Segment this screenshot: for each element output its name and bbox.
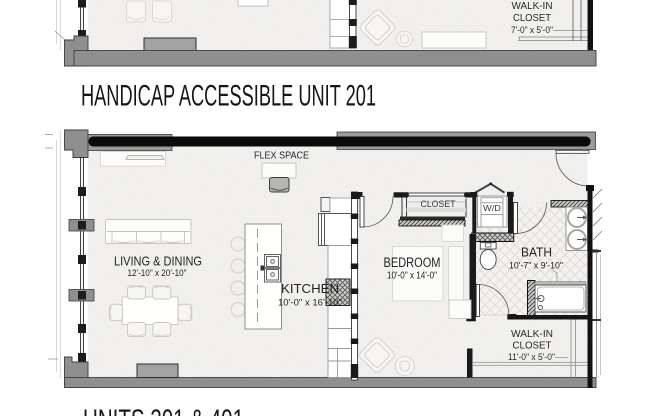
svg-text:CLOSET: CLOSET <box>513 13 551 24</box>
svg-text:KITCHEN: KITCHEN <box>281 281 339 296</box>
svg-text:12'-10" x 20'-10": 12'-10" x 20'-10" <box>128 268 187 279</box>
svg-text:10'-7" x 9'-10": 10'-7" x 9'-10" <box>509 261 563 272</box>
svg-text:7'-0" x 5'-0": 7'-0" x 5'-0" <box>511 25 553 36</box>
svg-text:WALK-IN: WALK-IN <box>511 329 553 340</box>
svg-text:CLOSET: CLOSET <box>421 199 457 209</box>
svg-text:W/D: W/D <box>483 203 501 213</box>
svg-text:UNITS 301 & 401: UNITS 301 & 401 <box>83 404 244 416</box>
svg-text:WALK-IN: WALK-IN <box>512 1 553 12</box>
svg-text:CLOSET: CLOSET <box>513 341 552 352</box>
svg-text:FLEX SPACE: FLEX SPACE <box>254 151 309 162</box>
svg-text:10'-0" x 14'-0": 10'-0" x 14'-0" <box>387 271 437 282</box>
svg-text:BEDROOM: BEDROOM <box>384 255 441 270</box>
svg-text:HANDICAP ACCESSIBLE UNIT 201: HANDICAP ACCESSIBLE UNIT 201 <box>81 80 376 113</box>
svg-text:11'-0" x 5'-0": 11'-0" x 5'-0" <box>508 352 555 363</box>
svg-text:BATH: BATH <box>521 245 552 260</box>
svg-text:LIVING & DINING: LIVING & DINING <box>114 254 202 269</box>
svg-text:10'-0" x 16'-10": 10'-0" x 16'-10" <box>278 298 342 309</box>
